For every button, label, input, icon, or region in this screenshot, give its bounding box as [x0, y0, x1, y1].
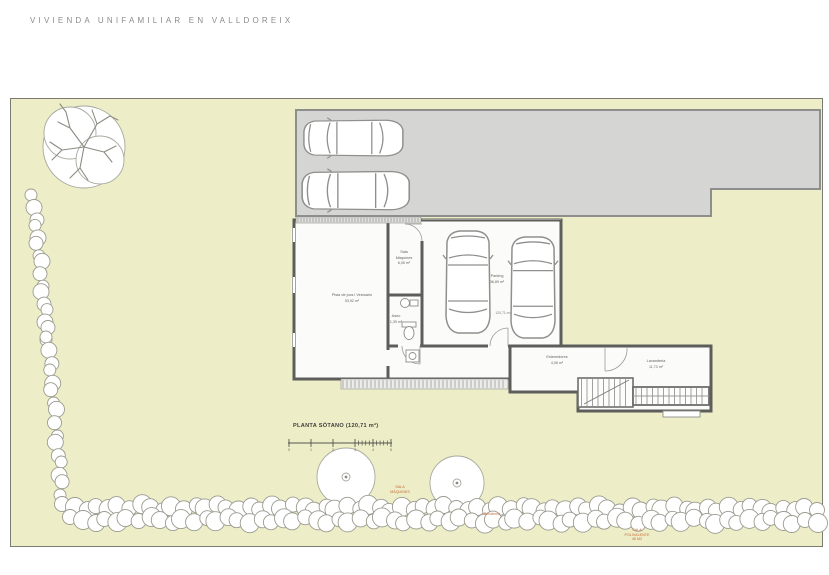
scale-number: 0: [288, 448, 290, 452]
room-label-drying: Estenedores 4,06 m²: [546, 355, 567, 366]
plan-caption: PLANTA SÓTANO (120,71 m²): [293, 423, 378, 429]
room-label-toilet: Aseo 1,39 m²: [390, 314, 402, 325]
drawing-title: VIVIENDA UNIFAMILIAR EN VALLDOREIX: [30, 16, 293, 25]
room-label-machine-room: Sala Màquines 6,05 m²: [394, 250, 414, 267]
room-label-parking: Parking 36,89 m²: [490, 274, 504, 285]
site-boundary: [10, 98, 823, 547]
scale-number: 2: [332, 448, 334, 452]
area-annotation: 120,71 m²: [495, 311, 510, 316]
room-label-playroom: Pista de jocs i Vestuario 53,92 m²: [332, 293, 372, 304]
scale-number: 5: [390, 448, 392, 452]
scale-number: 4: [372, 448, 374, 452]
scale-number: 3: [354, 448, 356, 452]
site-note-slope: Pendiente: [484, 512, 501, 517]
drawing-sheet: { "title": "VIVIENDA UNIFAMILIAR EN VALL…: [0, 0, 829, 575]
site-note-multipurpose-room: SALA POLIVALENTE 46 M2: [622, 528, 652, 542]
site-note-machine-room: SALA MÀQUINES: [389, 485, 411, 494]
scale-number: 1: [310, 448, 312, 452]
room-label-laundry: Lavanderia 11,73 m²: [647, 359, 666, 370]
